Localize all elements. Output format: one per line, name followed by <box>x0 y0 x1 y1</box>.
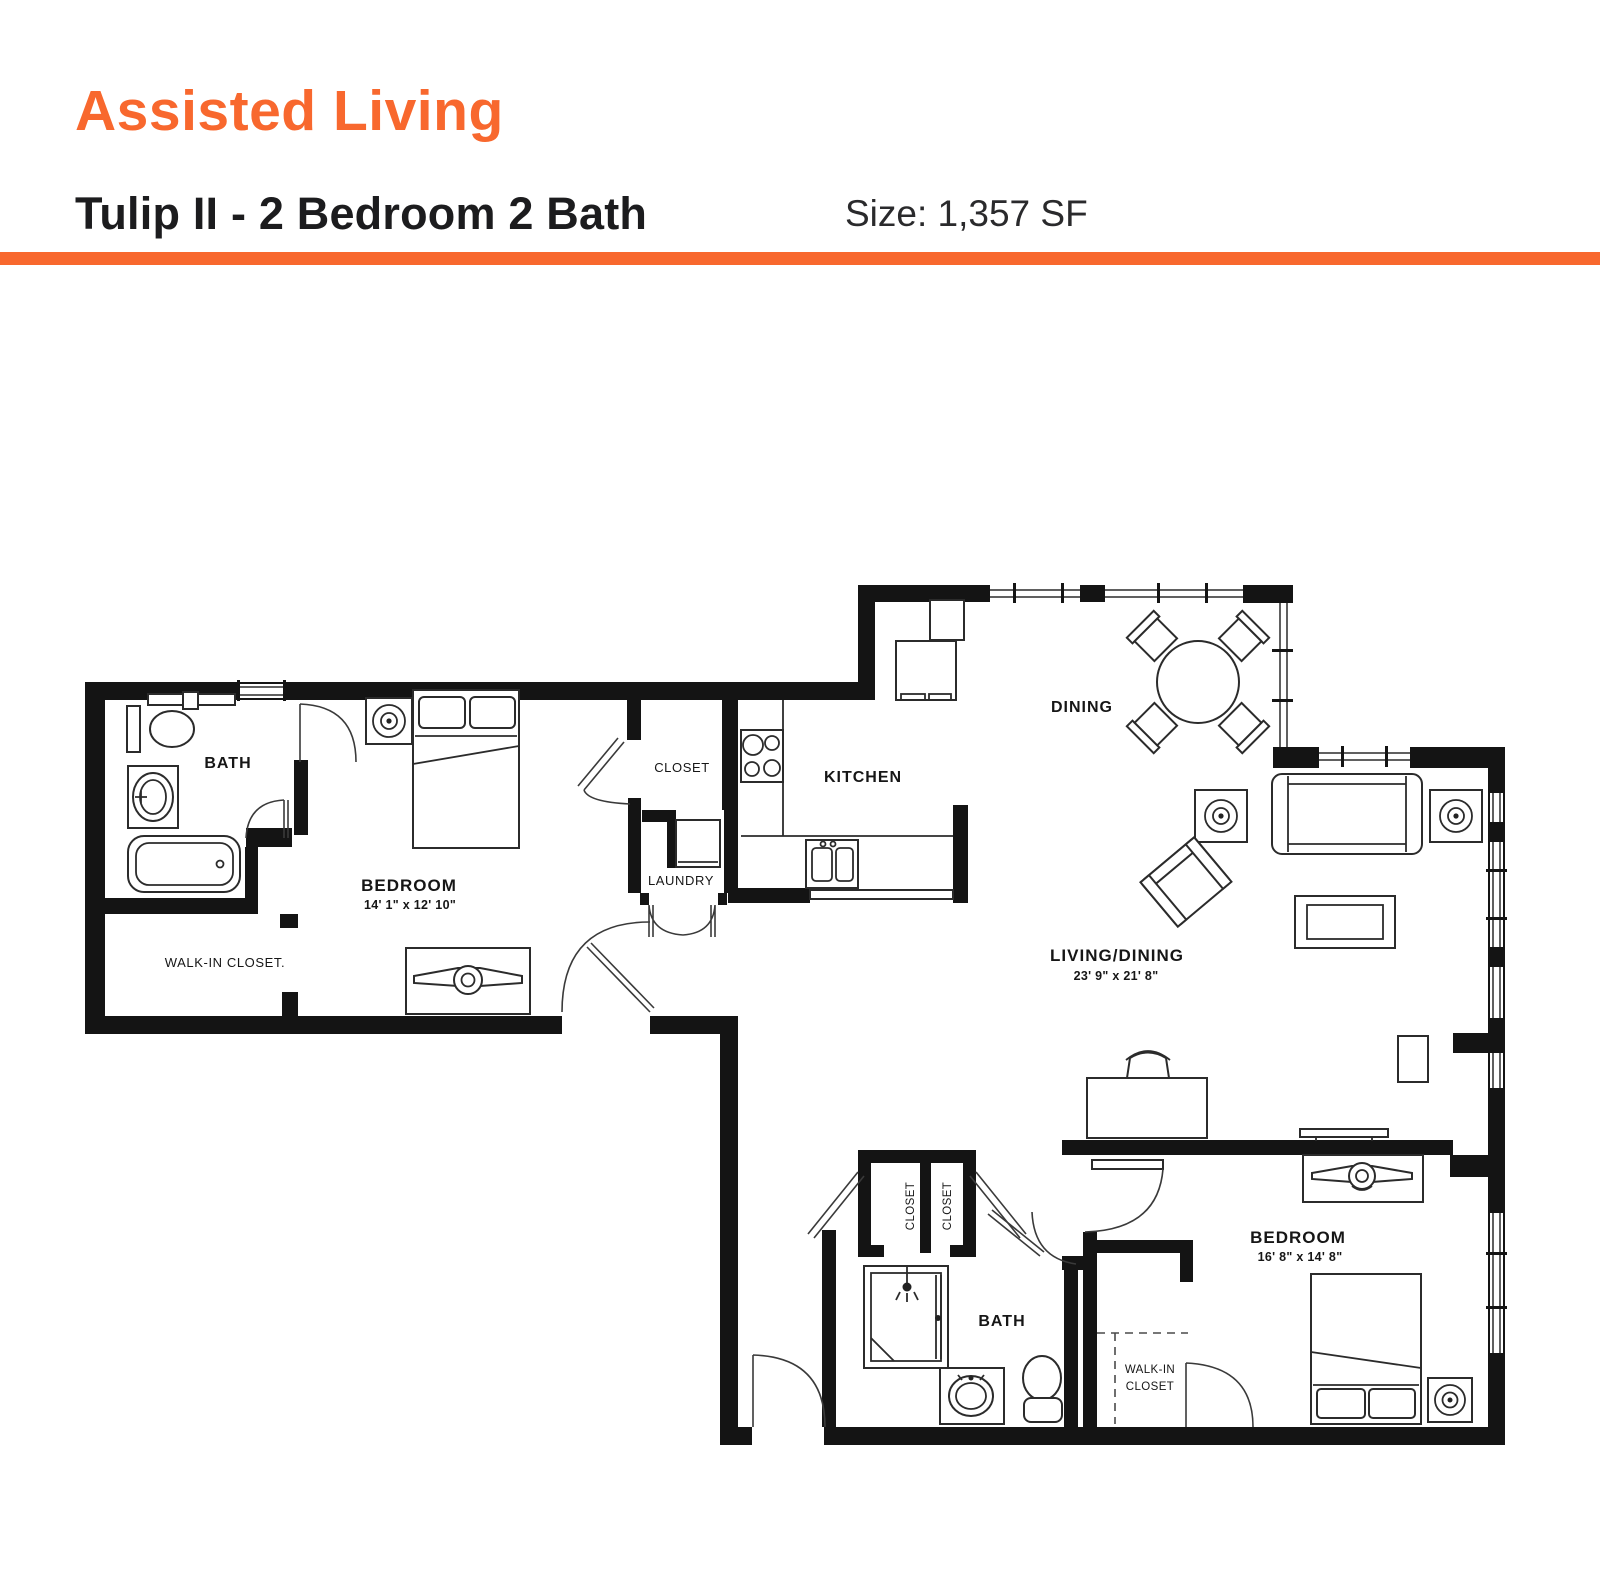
stove-glyph <box>741 730 783 782</box>
sofa-glyph <box>1272 774 1422 854</box>
entry-door-arc <box>753 1355 825 1427</box>
closet2a-bifold <box>808 1172 864 1238</box>
doors <box>246 704 1253 1427</box>
bed-1-glyph <box>413 690 519 848</box>
room-dims-living: 23' 9" x 21' 8" <box>1074 969 1159 983</box>
vanity-2-glyph <box>940 1368 1004 1424</box>
desk-glyph <box>1087 1051 1207 1138</box>
bath1-door-arc <box>300 704 356 762</box>
laundry-doors <box>649 905 715 937</box>
accent-chair-glyph <box>1141 837 1232 926</box>
room-label-living: LIVING/DINING <box>1050 946 1184 965</box>
bed-2-glyph <box>1311 1274 1421 1424</box>
shower-glyph <box>864 1266 948 1368</box>
bedroom1-door-arc <box>562 922 654 1012</box>
room-label-walkin-1: WALK-IN CLOSET. <box>165 955 285 970</box>
walkin2-door-arc <box>1186 1363 1253 1427</box>
closet1-door <box>578 738 630 804</box>
room-label-bedroom-2: BEDROOM <box>1250 1228 1346 1247</box>
nightstand-2-glyph <box>1428 1378 1472 1422</box>
closet2b-bifold <box>970 1172 1026 1238</box>
walls <box>85 585 1505 1445</box>
walkin2-rod-dashed <box>1097 1333 1188 1424</box>
room-label-closet-2a: CLOSET <box>905 1182 917 1230</box>
nightstand-1-glyph <box>366 698 412 744</box>
room-label-bath-2: BATH <box>978 1313 1025 1330</box>
vanity-1-glyph <box>128 766 178 828</box>
washer-glyph <box>676 820 720 867</box>
room-label-walkin-2-line2: CLOSET <box>1126 1381 1174 1393</box>
bedroom2-door-arc <box>1085 1169 1163 1232</box>
floor-plan: BATH BEDROOM 14' 1" x 12' 10" WALK-IN CL… <box>0 0 1600 1588</box>
toilet-2-glyph <box>1023 1356 1062 1422</box>
room-dims-bedroom-2: 16' 8" x 14' 8" <box>1258 1250 1343 1264</box>
side-table-left-glyph <box>1195 790 1247 842</box>
toilet-1-glyph <box>127 706 194 752</box>
room-label-bedroom-1: BEDROOM <box>361 876 457 895</box>
dining-table-glyph <box>1127 611 1269 753</box>
bath2-door <box>988 1210 1076 1264</box>
room-label-walkin-2-line1: WALK-IN <box>1125 1364 1175 1376</box>
kitchen-sink-glyph <box>806 840 858 888</box>
room-label-closet-1: CLOSET <box>654 760 710 775</box>
coffee-table-glyph <box>1295 896 1395 948</box>
bathtub-glyph <box>128 836 240 892</box>
pantry-cabinet-glyph <box>930 600 964 640</box>
room-label-closet-2b: CLOSET <box>942 1182 954 1230</box>
dresser-tv-1-glyph <box>406 948 530 1014</box>
bedroom2-door-leaf <box>1092 1160 1163 1169</box>
room-dims-bedroom-1: 14' 1" x 12' 10" <box>364 898 456 912</box>
room-label-kitchen: KITCHEN <box>824 769 902 786</box>
wall-shelf-glyph <box>1300 1129 1388 1141</box>
fridge-glyph <box>896 641 956 700</box>
room-labels: BATH BEDROOM 14' 1" x 12' 10" WALK-IN CL… <box>165 699 1346 1393</box>
dresser-tv-2-glyph <box>1303 1155 1423 1202</box>
bath1-shelf-box <box>183 692 198 709</box>
end-table-glyph <box>1398 1036 1428 1082</box>
pass-through-counter <box>810 890 953 899</box>
room-label-bath-1: BATH <box>204 755 251 772</box>
side-table-right-glyph <box>1430 790 1482 842</box>
room-label-dining: DINING <box>1051 699 1113 716</box>
room-label-laundry: LAUNDRY <box>648 873 714 888</box>
